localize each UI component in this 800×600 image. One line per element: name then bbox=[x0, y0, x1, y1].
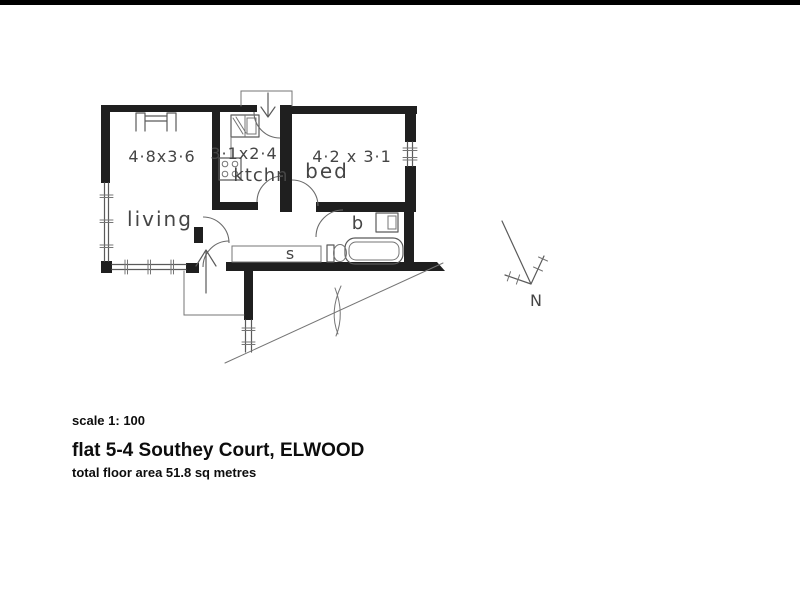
window-living-bottom bbox=[112, 260, 186, 274]
door-arc-bath bbox=[316, 210, 343, 237]
wall-left-upper bbox=[101, 105, 110, 183]
wall-bed-right-upper bbox=[405, 106, 416, 142]
store-cupboard-outline bbox=[232, 246, 321, 262]
room-dims-living: 4·8x3·6 bbox=[128, 147, 195, 166]
basin-symbol bbox=[376, 213, 398, 232]
wall-left-bottom-corner bbox=[101, 261, 112, 273]
wall-bed-right-lower bbox=[405, 166, 416, 212]
room-label-kitchen: ktchn bbox=[233, 165, 288, 186]
room-label-living: living bbox=[127, 207, 193, 231]
wall-bath-right bbox=[404, 212, 414, 264]
wall-kitchen-bed-divider bbox=[280, 105, 292, 212]
wall-kitchen-bottom bbox=[212, 202, 258, 210]
entry-arrow-top-icon bbox=[261, 93, 275, 117]
wall-bottom-main bbox=[226, 262, 445, 271]
door-arc-bed bbox=[292, 180, 318, 206]
room-label-bath: b bbox=[352, 213, 364, 234]
fireplace-symbol bbox=[136, 113, 176, 131]
scale-note: scale 1: 100 bbox=[72, 413, 145, 428]
door-arc-living bbox=[203, 217, 229, 243]
porch-top-outline bbox=[241, 91, 292, 106]
window-living-left bbox=[100, 183, 113, 261]
porch-bottom-outline bbox=[184, 271, 244, 315]
north-label: N bbox=[530, 291, 542, 310]
room-label-store: s bbox=[286, 244, 294, 263]
wall-top-living-kitchen bbox=[101, 105, 257, 112]
toilet-symbol bbox=[327, 245, 347, 263]
floor-plan-drawing: 4·8x3·6 living 3·1x2·4 ktchn 4·2 x 3·1 b… bbox=[0, 0, 800, 600]
wall-porch-stub bbox=[244, 262, 253, 320]
room-label-bed: bed bbox=[305, 159, 349, 183]
bathtub-symbol bbox=[345, 238, 403, 264]
plan-title: flat 5-4 Southey Court, ELWOOD bbox=[72, 440, 364, 462]
north-arrow-icon bbox=[502, 221, 548, 284]
window-bed-right bbox=[403, 142, 417, 166]
wall-top-bed bbox=[281, 106, 417, 114]
room-dims-kitchen: 3·1x2·4 bbox=[210, 144, 277, 163]
wall-living-hall-stub bbox=[194, 227, 203, 243]
screenshot-root: 4·8x3·6 living 3·1x2·4 ktchn 4·2 x 3·1 b… bbox=[0, 0, 800, 600]
fence-stub-below bbox=[242, 320, 255, 352]
wall-bed-bottom bbox=[316, 202, 405, 212]
door-arc-front-entry bbox=[203, 241, 229, 267]
floor-area-note: total floor area 51.8 sq metres bbox=[72, 465, 256, 480]
